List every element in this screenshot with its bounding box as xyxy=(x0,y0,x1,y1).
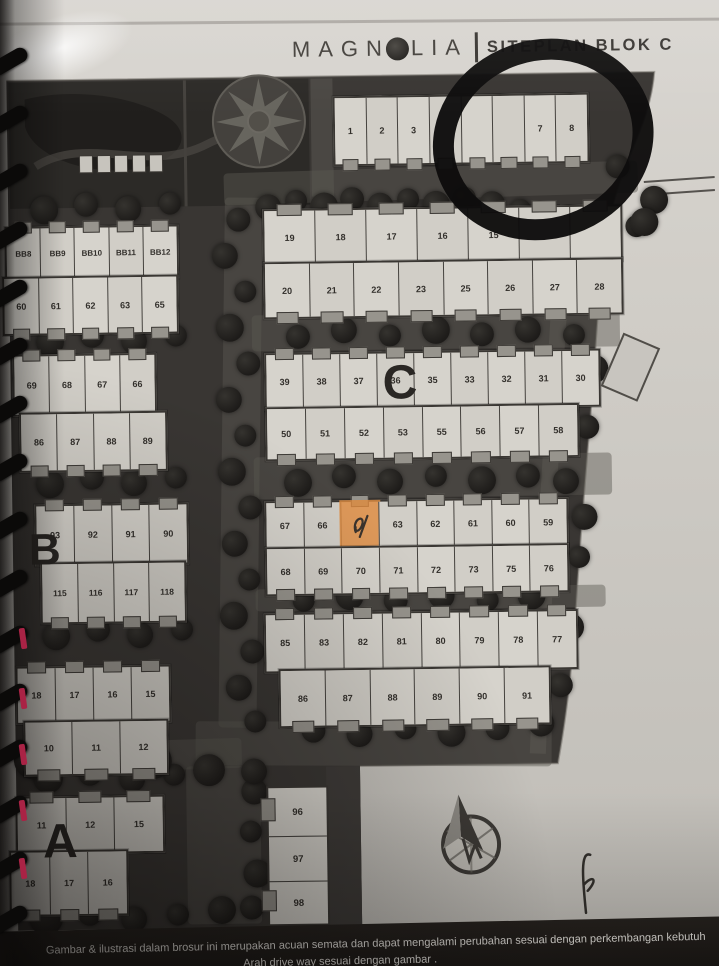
lot: 62 xyxy=(72,278,107,333)
lot: 66 xyxy=(119,355,155,413)
lot-porch xyxy=(117,220,134,232)
lot-porch xyxy=(98,908,117,920)
lot-porch xyxy=(532,200,557,212)
lot-porch xyxy=(353,607,373,619)
lot-porch xyxy=(139,464,157,476)
lot: 97 xyxy=(269,835,328,881)
lot-number: 67 xyxy=(97,380,107,390)
lot: 82 xyxy=(343,614,383,671)
lot-porch xyxy=(430,202,455,214)
lot-row-c-85-77: 8583828180797877 xyxy=(264,609,579,673)
lot-porch xyxy=(93,348,111,360)
lot-number: 80 xyxy=(436,636,446,646)
lot-row-c-1-8: 12378 xyxy=(333,93,590,167)
lot-number: 118 xyxy=(160,587,174,597)
lot: 87 xyxy=(324,670,370,726)
lot-number: 61 xyxy=(51,301,61,311)
lot-porch xyxy=(423,346,442,358)
lot: 2 xyxy=(365,97,398,163)
lot-porch xyxy=(516,718,538,730)
lot-porch xyxy=(355,453,375,465)
lot: 63 xyxy=(107,277,142,332)
lot-number: 88 xyxy=(387,692,397,702)
lot-number: 83 xyxy=(319,637,329,647)
lot-number: 17 xyxy=(69,690,79,700)
lot-number: 59 xyxy=(543,517,553,527)
lot: 90 xyxy=(149,504,188,563)
lot-number: 76 xyxy=(544,563,554,573)
lot: 33 xyxy=(450,352,488,407)
lot: 30 xyxy=(561,351,599,406)
lot: 51 xyxy=(305,408,345,459)
lot-porch xyxy=(497,345,516,357)
page-title: MAGN LIA SITEPLAN BLOK C xyxy=(292,27,712,67)
lot-number: 32 xyxy=(501,374,511,384)
lot: BB10 xyxy=(74,227,109,277)
lot-porch xyxy=(277,454,297,466)
lot xyxy=(341,502,379,549)
section-title: SITEPLAN BLOK C xyxy=(487,35,674,57)
lot: 71 xyxy=(379,547,417,593)
lot-number: BB9 xyxy=(49,249,65,258)
lot-porch xyxy=(469,157,485,169)
lot-porch xyxy=(117,327,135,339)
lot: 69 xyxy=(304,548,342,594)
lot: 27 xyxy=(532,260,577,314)
lot-number: 15 xyxy=(145,689,155,699)
lot: 57 xyxy=(499,405,539,456)
lot: 22 xyxy=(353,262,398,316)
lot: 76 xyxy=(529,545,567,591)
lot: 87 xyxy=(56,414,93,471)
lot: 89 xyxy=(129,413,166,470)
lot-number: 65 xyxy=(155,299,165,309)
lot-porch xyxy=(276,589,295,601)
lot-number: 77 xyxy=(552,634,562,644)
lot-porch xyxy=(502,586,521,598)
lot-row-c-20-28: 2021222325262728 xyxy=(263,257,624,319)
lot: BB12 xyxy=(142,227,177,277)
lot: 32 xyxy=(487,352,525,407)
lot-porch xyxy=(349,347,368,359)
lot-porch xyxy=(314,607,334,619)
lot-porch xyxy=(313,495,332,507)
lot-porch xyxy=(47,328,65,340)
lot: 91 xyxy=(111,505,150,564)
lot-row-c-39-30: 393837363533323130 xyxy=(264,349,601,412)
lot: 15 xyxy=(467,208,519,262)
magnolia-logo-dot-icon xyxy=(386,37,409,60)
brand-name-prefix: MAGN xyxy=(292,36,390,63)
lot-number: 68 xyxy=(280,566,290,576)
lot-number: 3 xyxy=(411,125,416,135)
lot-number: 116 xyxy=(89,588,103,598)
lot: 81 xyxy=(381,613,421,670)
lot-number: 90 xyxy=(477,691,487,701)
lot-porch xyxy=(51,617,69,629)
lot: 3 xyxy=(397,97,430,163)
lot: 117 xyxy=(113,563,150,621)
lot-number: 15 xyxy=(488,230,498,240)
highlight-mark xyxy=(339,500,380,551)
lot: 88 xyxy=(369,669,415,725)
lot-porch xyxy=(140,660,159,672)
lot-porch xyxy=(66,465,84,477)
lot: 15 xyxy=(131,667,170,722)
lot-porch xyxy=(379,202,404,214)
area-label-a: A xyxy=(43,818,78,866)
lot: 55 xyxy=(421,407,461,458)
lot-porch xyxy=(481,201,506,213)
lot-number: 62 xyxy=(85,300,95,310)
lot-number: BB10 xyxy=(81,248,102,257)
lot-porch xyxy=(544,308,566,320)
lot-number: 57 xyxy=(514,426,524,436)
lot-number: 71 xyxy=(393,565,403,575)
lot-row-c-68-76: 6869707172737576 xyxy=(265,543,570,596)
lot-number: 52 xyxy=(359,428,369,438)
lot: 59 xyxy=(529,499,567,546)
lot: 25 xyxy=(442,261,487,315)
lot-porch xyxy=(45,499,64,511)
lot-number: 91 xyxy=(125,529,135,539)
lot-number: 12 xyxy=(85,820,95,830)
lot: 98 xyxy=(270,880,329,924)
lot: 23 xyxy=(398,262,443,316)
lot-number: 38 xyxy=(316,376,326,386)
lot-porch xyxy=(64,661,83,673)
lot-porch xyxy=(352,588,371,600)
lot: 50 xyxy=(267,409,306,460)
lot-number: 55 xyxy=(437,427,447,437)
lot-porch xyxy=(427,719,449,731)
lot: 78 xyxy=(498,612,538,669)
title-divider xyxy=(475,32,478,62)
lot-porch xyxy=(260,798,275,822)
lot: 65 xyxy=(141,277,176,332)
lot: 28 xyxy=(576,259,621,313)
lot-number: 2 xyxy=(379,126,384,136)
lot-number: 27 xyxy=(550,282,560,292)
lot-porch xyxy=(393,452,413,464)
lot-porch xyxy=(389,587,408,599)
lot: 8 xyxy=(555,95,588,161)
lot-porch xyxy=(455,309,477,321)
lot-number: 12 xyxy=(138,742,148,752)
spiral-binding xyxy=(0,0,46,966)
lot-porch xyxy=(583,200,608,212)
lot: 31 xyxy=(524,351,562,406)
lot-number: 8 xyxy=(569,123,574,133)
lot-porch xyxy=(58,349,76,361)
lot-number: 86 xyxy=(298,693,308,703)
lot-porch xyxy=(312,347,331,359)
lot-number: 16 xyxy=(103,877,113,887)
lot-porch xyxy=(316,453,336,465)
lot: 52 xyxy=(344,408,384,459)
lot-number: BB12 xyxy=(150,247,171,256)
lot-number: 56 xyxy=(476,426,486,436)
lot-porch xyxy=(382,719,404,731)
lot-porch xyxy=(328,203,353,215)
lot xyxy=(569,206,621,260)
lot-porch xyxy=(571,344,590,356)
lot: 63 xyxy=(378,501,416,548)
lot-porch xyxy=(564,156,580,168)
area-label-c: C xyxy=(382,359,417,407)
lot-porch xyxy=(151,220,168,232)
lot-number: 22 xyxy=(371,284,381,294)
lot: 86 xyxy=(281,671,326,727)
lot-number: 96 xyxy=(292,806,303,817)
lot-number: 21 xyxy=(327,285,337,295)
lot-porch xyxy=(337,720,359,732)
lot-porch xyxy=(549,450,569,462)
lot-porch xyxy=(102,660,121,672)
lot-porch xyxy=(366,311,388,323)
lot-number: 15 xyxy=(134,819,144,829)
lot: 7 xyxy=(523,95,556,161)
lot: 58 xyxy=(538,405,578,456)
lot-porch xyxy=(292,721,314,733)
lot-row-b-115-118: 115116117118 xyxy=(40,560,187,624)
lot: 67 xyxy=(84,355,120,413)
lot-number: 20 xyxy=(282,285,292,295)
lot: 19 xyxy=(264,211,315,265)
lot-number: 51 xyxy=(320,428,330,438)
lot: 53 xyxy=(383,407,423,458)
lot-porch xyxy=(128,348,146,360)
lot-porch xyxy=(510,451,530,463)
lot-porch xyxy=(132,768,155,780)
lot-number: BB11 xyxy=(116,248,136,257)
lot-porch xyxy=(321,311,343,323)
lot xyxy=(492,96,525,162)
lot: 11 xyxy=(72,721,120,774)
lot-porch xyxy=(540,585,559,597)
lot-porch xyxy=(103,464,121,476)
lot-porch xyxy=(538,492,557,504)
lot-number: 31 xyxy=(538,373,548,383)
lot-porch xyxy=(83,221,100,233)
lot: 83 xyxy=(304,614,344,671)
lot-number: 53 xyxy=(398,427,408,437)
lot-porch xyxy=(83,499,102,511)
lot: 79 xyxy=(459,612,499,669)
lot: 12 xyxy=(119,721,167,774)
lot-number: 82 xyxy=(358,637,368,647)
lot: 61 xyxy=(453,500,491,547)
lot-porch xyxy=(547,604,567,616)
lot: 73 xyxy=(454,546,492,592)
lot-porch xyxy=(60,909,79,921)
lot: 91 xyxy=(504,667,550,723)
lot: 16 xyxy=(416,208,468,262)
lot: 118 xyxy=(148,562,185,620)
lot-number: 63 xyxy=(120,300,130,310)
lot: 70 xyxy=(341,548,379,594)
lot: 20 xyxy=(265,264,309,318)
lot-number: 17 xyxy=(386,231,396,241)
lot-row-c-19-15: 1918171615 xyxy=(262,204,623,266)
lot-number: 87 xyxy=(70,437,80,447)
lot-number: 89 xyxy=(143,436,153,446)
lot-number: 72 xyxy=(431,564,441,574)
lot-number: 117 xyxy=(124,587,138,597)
lot: 16 xyxy=(87,851,127,914)
lot-number: 90 xyxy=(163,529,173,539)
lot-number: 75 xyxy=(506,563,516,573)
lot-number: 26 xyxy=(505,282,515,292)
lot: 77 xyxy=(537,611,577,668)
lot-porch xyxy=(427,587,446,599)
lot-porch xyxy=(275,608,295,620)
lot: 68 xyxy=(48,356,84,414)
lot: 17 xyxy=(365,209,417,263)
lot: 80 xyxy=(420,613,460,670)
lot-porch xyxy=(469,605,489,617)
lot-porch xyxy=(426,494,445,506)
lot-porch xyxy=(534,344,553,356)
brand-name-suffix: LIA xyxy=(411,34,468,61)
lot-porch xyxy=(501,157,517,169)
lot-number: 25 xyxy=(461,283,471,293)
handwritten-pen-mark xyxy=(570,848,621,929)
lot-number: 89 xyxy=(432,691,442,701)
lot-number: 69 xyxy=(318,566,328,576)
lot xyxy=(518,207,570,261)
lot xyxy=(460,96,493,162)
lot-number: 67 xyxy=(280,521,290,531)
lot-porch xyxy=(48,221,65,233)
lot: 15 xyxy=(114,797,163,852)
lot: 56 xyxy=(460,406,500,457)
lot-number: 7 xyxy=(538,123,543,133)
lot-porch xyxy=(388,494,407,506)
lot: 21 xyxy=(309,263,354,317)
lot-porch xyxy=(85,769,108,781)
circular-plaza-star xyxy=(212,75,305,168)
lot: 1 xyxy=(335,98,367,164)
lot-number: 88 xyxy=(106,436,116,446)
lot-number: 33 xyxy=(464,374,474,384)
lot-number: 66 xyxy=(317,520,327,530)
lot-porch xyxy=(430,606,450,618)
lot: BB11 xyxy=(108,227,143,277)
lot-number: 81 xyxy=(397,636,407,646)
lot-porch xyxy=(438,158,454,170)
lot-number: 115 xyxy=(53,588,67,598)
lot: 68 xyxy=(267,549,304,595)
lot-number: 16 xyxy=(107,689,117,699)
lot: 39 xyxy=(266,355,303,409)
lot: 17 xyxy=(55,668,94,723)
lot: 89 xyxy=(414,669,460,725)
lot-number: 97 xyxy=(293,853,304,864)
lot-porch xyxy=(275,496,294,508)
lot-number: 91 xyxy=(522,690,532,700)
lot-porch xyxy=(471,451,491,463)
lot-porch xyxy=(158,616,176,628)
lot-number: 30 xyxy=(575,373,585,383)
lot-porch xyxy=(499,309,521,321)
lot-number: 23 xyxy=(416,284,426,294)
lot-porch xyxy=(276,312,298,324)
lot: 92 xyxy=(73,505,112,564)
lot-row-c-50-58: 5051525355565758 xyxy=(265,403,580,461)
lot-porch xyxy=(463,493,482,505)
lot-porch xyxy=(432,452,452,464)
lot-number: 92 xyxy=(88,530,98,540)
lot-number: 73 xyxy=(469,564,479,574)
lot: 38 xyxy=(302,354,340,409)
lot-porch xyxy=(82,328,100,340)
brochure-photo: 1237819181716152021222325262728393837363… xyxy=(0,0,719,966)
lot: 18 xyxy=(314,210,366,264)
lot-number: 50 xyxy=(281,429,291,439)
lot: 16 xyxy=(93,667,132,722)
lot: 75 xyxy=(492,546,530,592)
lot-porch xyxy=(121,498,140,510)
lot-number: 18 xyxy=(335,232,345,242)
lot: 85 xyxy=(266,615,305,672)
lot: 67 xyxy=(266,503,303,550)
lot-porch xyxy=(314,588,333,600)
lot: 72 xyxy=(416,547,454,593)
lot-porch xyxy=(151,327,169,339)
lot-number: 19 xyxy=(284,232,294,242)
lot-number: 39 xyxy=(279,377,289,387)
lot-porch xyxy=(464,586,483,598)
lot-number: 87 xyxy=(343,693,353,703)
lot-porch xyxy=(589,307,611,319)
lot-number: 79 xyxy=(474,635,484,645)
lot-porch xyxy=(78,791,102,803)
lot: 35 xyxy=(413,353,451,408)
lot-number: 63 xyxy=(393,519,403,529)
printed-page-content: 1237819181716152021222325262728393837363… xyxy=(0,0,719,966)
lot-porch xyxy=(126,790,150,802)
lot-porch xyxy=(277,204,302,216)
lot: 62 xyxy=(416,501,454,548)
lot-porch xyxy=(262,891,277,912)
lot-number: 1 xyxy=(348,126,353,136)
lot-number: 70 xyxy=(356,565,366,575)
lot-number: 62 xyxy=(430,519,440,529)
lot-number: 61 xyxy=(468,518,478,528)
lot: 66 xyxy=(303,502,341,549)
lot-number: 28 xyxy=(594,281,604,291)
lot-porch xyxy=(471,718,493,730)
lot-porch xyxy=(508,605,528,617)
lot-porch xyxy=(532,156,548,168)
lot-porch xyxy=(275,348,294,360)
lot-number: 58 xyxy=(553,425,563,435)
lot: 90 xyxy=(459,668,505,724)
lot-porch xyxy=(158,498,177,510)
lot xyxy=(428,97,461,163)
lot: 60 xyxy=(491,500,529,547)
lot-number: 68 xyxy=(62,380,72,390)
lot-porch xyxy=(374,159,390,171)
lot-number: 66 xyxy=(132,379,142,389)
lot-number: 60 xyxy=(506,518,516,528)
lot-number: 35 xyxy=(427,375,437,385)
lot-number: 98 xyxy=(293,897,304,908)
lot-porch xyxy=(123,616,141,628)
lot: 88 xyxy=(93,413,130,470)
lot: 116 xyxy=(77,563,114,621)
